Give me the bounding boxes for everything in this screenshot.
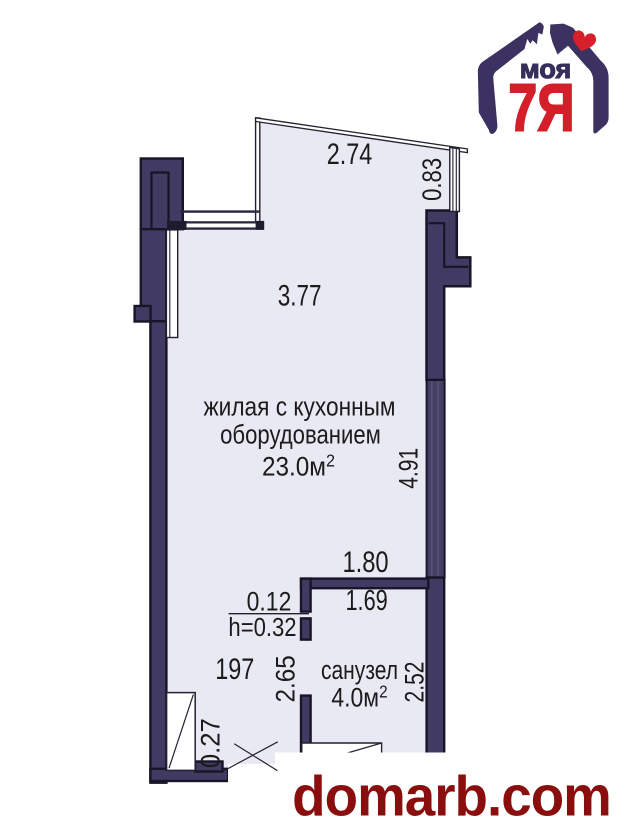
svg-text:0.27: 0.27 (195, 718, 226, 768)
svg-text:4.91: 4.91 (394, 448, 424, 489)
svg-text:h=0.32: h=0.32 (228, 613, 296, 642)
svg-text:оборудованием: оборудованием (220, 421, 381, 451)
svg-text:жилая с кухонным: жилая с кухонным (204, 392, 396, 422)
svg-text:2.74: 2.74 (327, 137, 373, 170)
svg-text:2.52: 2.52 (400, 662, 430, 703)
svg-text:7Я: 7Я (508, 70, 574, 145)
svg-text:2.65: 2.65 (271, 655, 300, 702)
svg-text:23.0м2: 23.0м2 (262, 451, 335, 482)
svg-text:197: 197 (215, 652, 254, 685)
svg-text:domarb.com: domarb.com (292, 764, 611, 828)
svg-text:1.80: 1.80 (342, 545, 388, 578)
svg-text:0.83: 0.83 (418, 158, 448, 201)
svg-text:1.69: 1.69 (345, 585, 387, 617)
svg-text:3.77: 3.77 (278, 278, 322, 312)
